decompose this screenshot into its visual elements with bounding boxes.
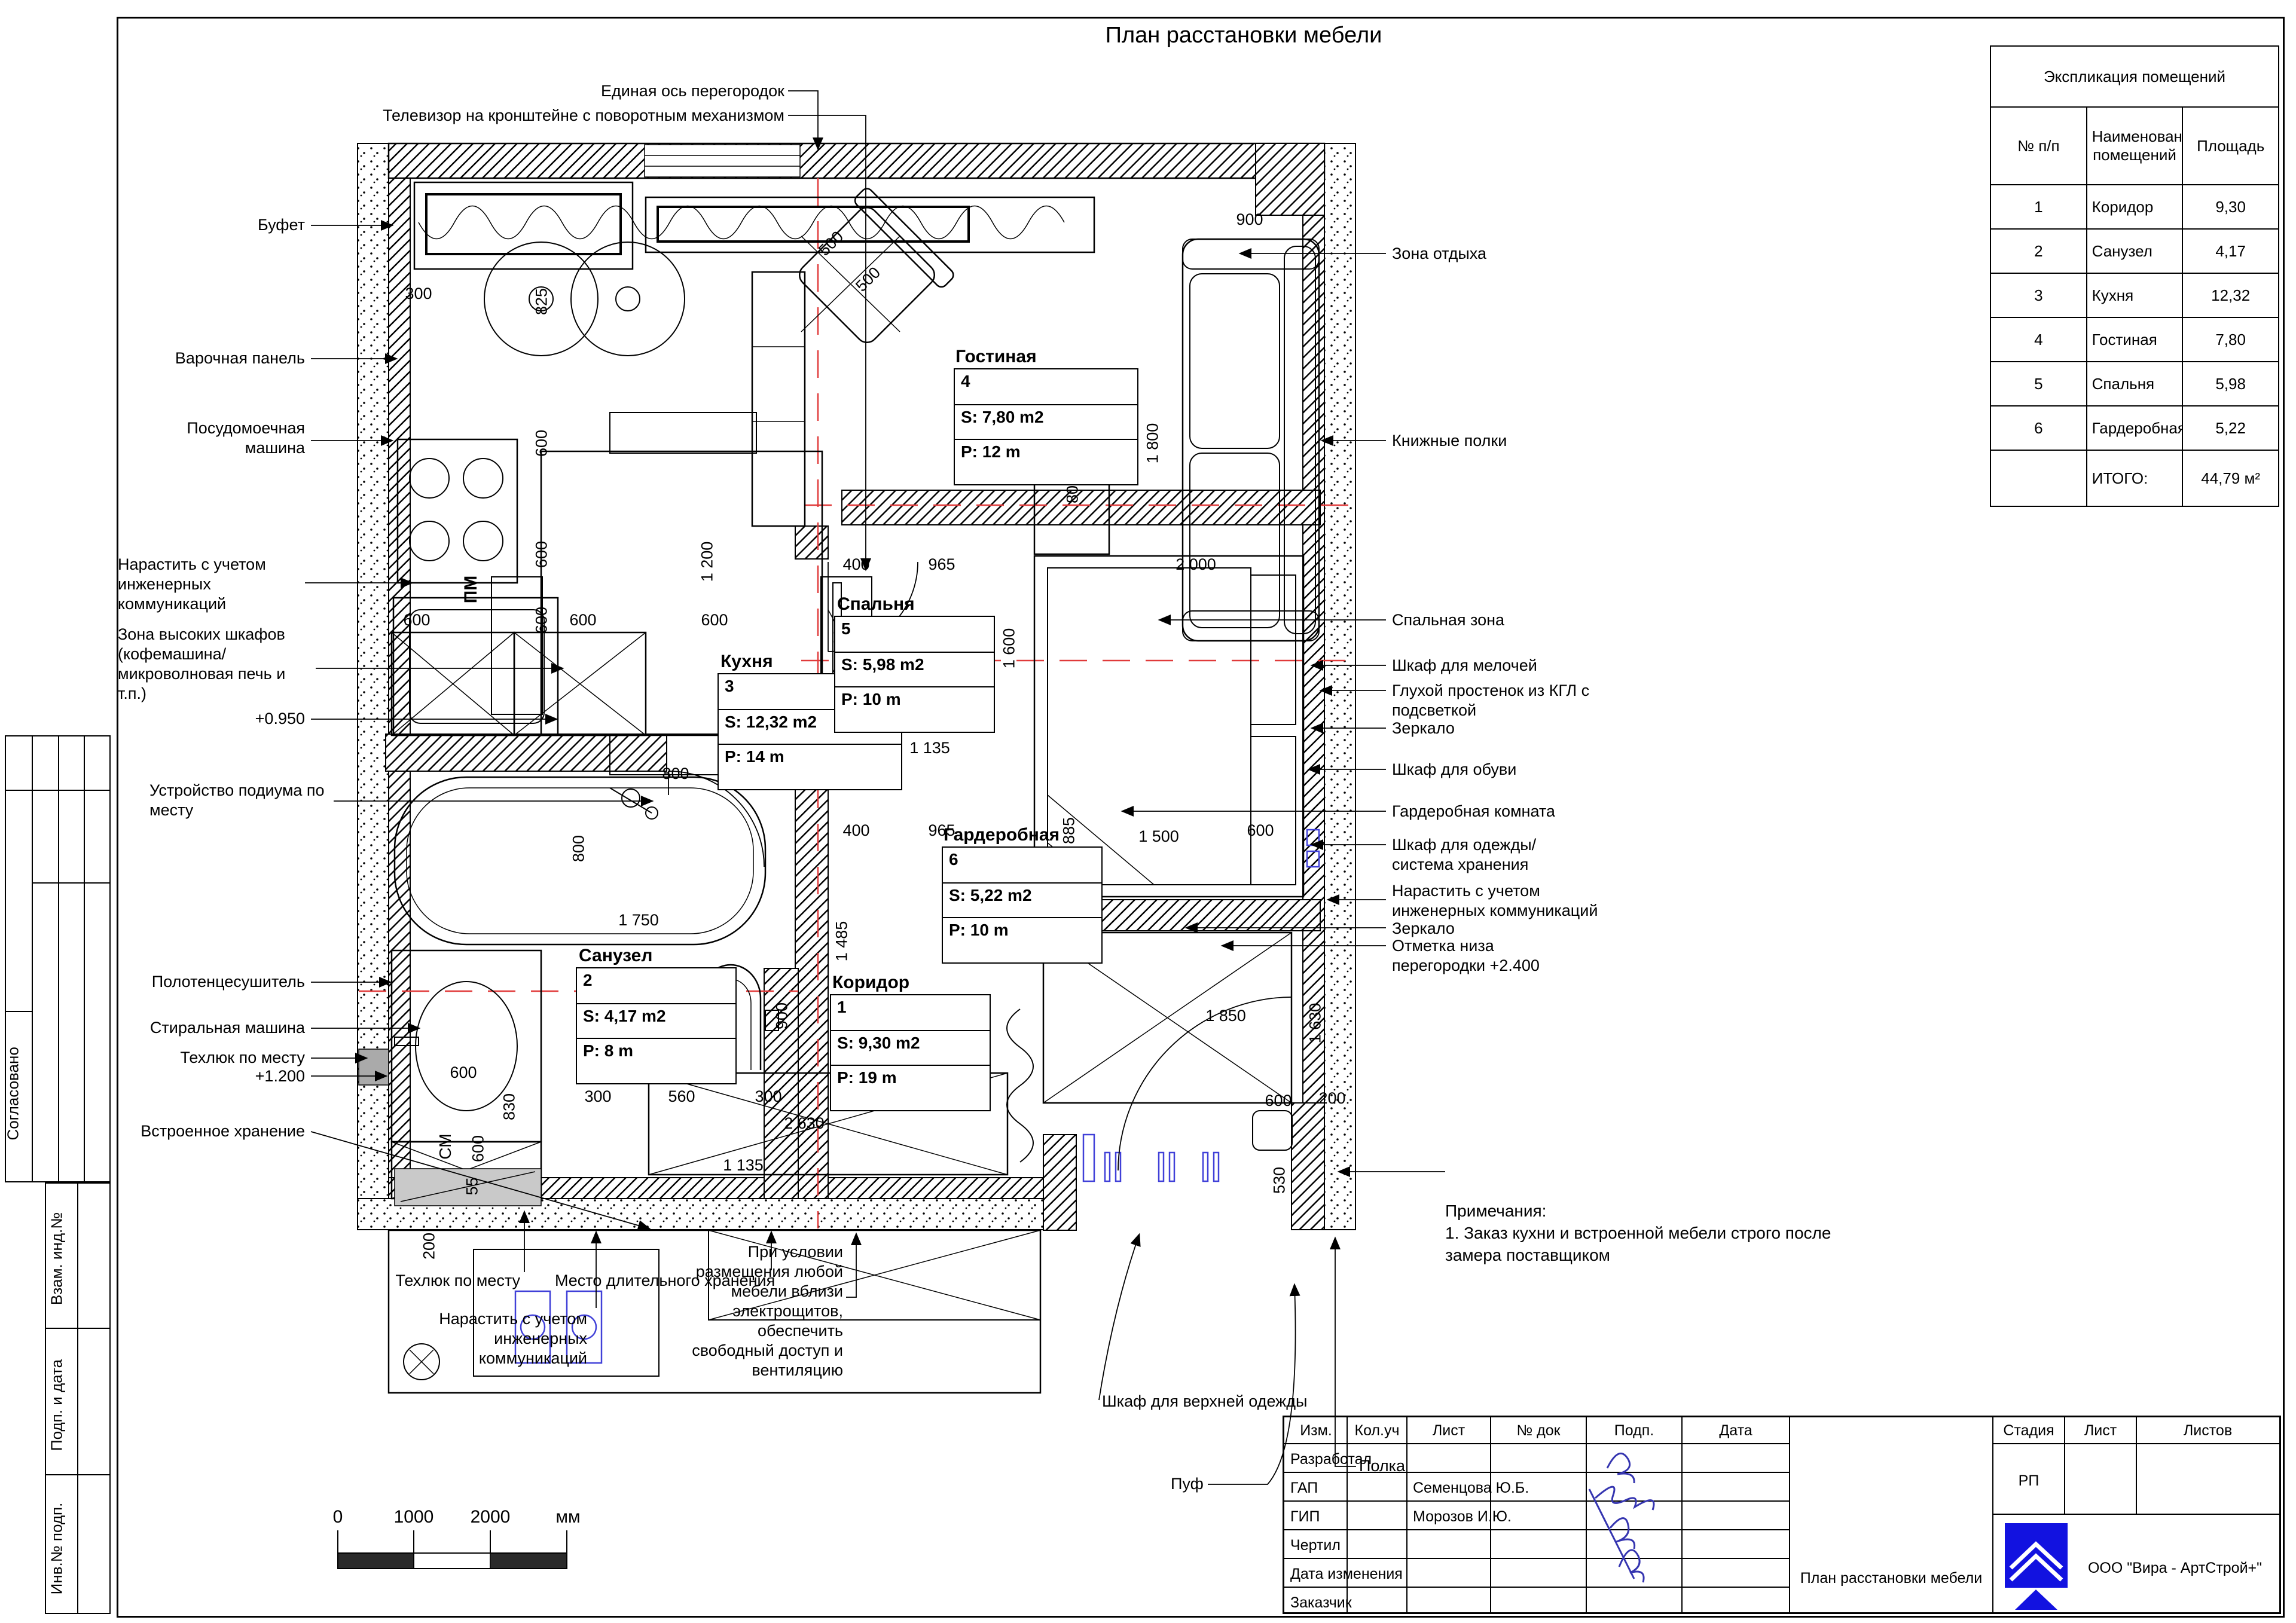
total-value: 44,79 м²	[2182, 450, 2279, 506]
table-row: 3 Кухня 12,32	[1990, 273, 2279, 317]
callout-shoe-cabinet: Шкаф для обуви	[1392, 760, 1571, 780]
stamp-inv: Инв.№ подп.	[48, 1501, 66, 1597]
room-stamp-bedroom: 5 S: 5,98 m2 P: 10 m	[834, 616, 995, 733]
callout-level-1200: +1.200	[215, 1066, 305, 1086]
cell-area: 7,80	[2182, 317, 2279, 362]
notes-title: Примечания:	[1445, 1200, 1900, 1222]
title-block: Изм. Кол.уч Лист № док Подп. Дата Разраб…	[1283, 1416, 2281, 1614]
dim: 1 135	[710, 1156, 776, 1175]
room-stamp-livingroom: 4 S: 7,80 m2 P: 12 m	[954, 368, 1138, 485]
callout-builtin-storage: Встроенное хранение	[126, 1121, 305, 1141]
dim: 1 200	[698, 529, 717, 595]
room-perimeter: P: 8 m	[577, 1038, 735, 1072]
room-name-bedroom: Спальня	[837, 594, 915, 615]
cell-name: Спальня	[2087, 362, 2183, 406]
col-header-name: Наименование помещений	[2087, 107, 2183, 185]
room-area: S: 7,80 m2	[955, 404, 1137, 439]
dim: 800	[643, 765, 709, 783]
cell-num: 4	[1990, 317, 2087, 362]
dim: 300	[565, 1087, 631, 1106]
stamp-podp: Подп. и дата	[48, 1358, 66, 1453]
room-area: S: 9,30 m2	[831, 1030, 990, 1065]
callout-partition-axis: Единая ось перегородок	[468, 81, 784, 101]
dim: 800	[570, 816, 588, 882]
tb-role-change-date: Дата изменения	[1290, 1566, 1403, 1583]
col-header-area: Площадь	[2182, 107, 2279, 185]
callout-washing-machine: Стиральная машина	[126, 1018, 305, 1038]
callout-pouf: Пуф	[1171, 1474, 1242, 1494]
tb-col-list: Лист	[1407, 1422, 1491, 1439]
tb-sheets-label: Листов	[2136, 1422, 2279, 1439]
cell-area: 5,98	[2182, 362, 2279, 406]
scale-0: 0	[320, 1506, 356, 1529]
dim: 1 630	[1306, 991, 1325, 1056]
company-logo	[2005, 1523, 2068, 1610]
room-num: 5	[835, 617, 994, 652]
room-perimeter: P: 10 m	[943, 917, 1101, 952]
callout-extend-utilities-right: Нарастить с учетом инженерных коммуникац…	[1392, 881, 1625, 921]
callout-buffet: Буфет	[155, 215, 305, 235]
table-total-row: ИТОГО: 44,79 м²	[1990, 450, 2279, 506]
tb-sheet-label: Лист	[2065, 1422, 2136, 1439]
callout-podium: Устройство подиума по месту	[149, 781, 329, 820]
dim: 1 135	[897, 739, 963, 757]
tb-col-izm: Изм.	[1289, 1422, 1343, 1439]
tb-role-drew: Чертил	[1290, 1537, 1341, 1554]
tb-doc-title: План расстановки мебели	[1790, 1570, 1993, 1587]
callout-level-0950: +0.950	[215, 709, 305, 729]
tb-role-gip: ГИП	[1290, 1508, 1320, 1526]
callout-blind-partition: Глухой простенок из КГЛ с подсветкой	[1392, 681, 1625, 720]
cell-area: 9,30	[2182, 185, 2279, 229]
callout-tall-cabinets: Зона высоких шкафов (кофемашина/ микрово…	[118, 625, 303, 704]
tb-stage-value: РП	[1993, 1472, 2065, 1490]
room-stamp-bathroom: 2 S: 4,17 m2 P: 8 m	[576, 967, 737, 1084]
tb-role-customer: Заказчик	[1290, 1594, 1352, 1612]
tb-col-podp: Подп.	[1586, 1422, 1682, 1439]
dim: 200	[1299, 1089, 1365, 1108]
callout-clothes-storage: Шкаф для одежды/ система хранения	[1392, 835, 1583, 875]
explication-table: Экспликация помещений № п/п Наименование…	[1990, 45, 2279, 507]
room-area: S: 4,17 m2	[577, 1003, 735, 1038]
cell-name: Санузел	[2087, 229, 2183, 273]
dim: 2 000	[1163, 555, 1229, 574]
dim: 300	[735, 1087, 801, 1106]
callout-hob: Варочная панель	[126, 349, 305, 368]
dim: 530	[1271, 1148, 1289, 1214]
tb-role-gap: ГАП	[1290, 1480, 1318, 1497]
table-row: 5 Спальня 5,98	[1990, 362, 2279, 406]
dim: 600	[533, 588, 551, 653]
floor-plan	[0, 0, 2296, 1623]
tb-col-koluch: Кол.уч	[1347, 1422, 1407, 1439]
washing-machine-mark: СМ	[436, 1114, 455, 1179]
room-name-bathroom: Санузел	[579, 946, 652, 966]
dim: 600	[1228, 821, 1293, 840]
cell-area: 5,22	[2182, 406, 2279, 450]
stamp-vzam: Взам. инд.№	[48, 1211, 66, 1307]
dim: 825	[533, 269, 551, 335]
total-label: ИТОГО:	[2087, 450, 2183, 506]
scale-1000: 1000	[378, 1506, 450, 1529]
tb-name-gap: Семенцова Ю.Б.	[1413, 1480, 1529, 1497]
cell-num: 2	[1990, 229, 2087, 273]
dim: 900	[1217, 210, 1283, 229]
room-stamp-wardrobe: 6 S: 5,22 m2 P: 10 m	[942, 846, 1103, 964]
callout-mirror-2: Зеркало	[1392, 919, 1512, 939]
dim: 400	[823, 821, 889, 840]
callout-rest-zone: Зона отдыха	[1392, 244, 1607, 264]
cell-name: Гардеробная	[2087, 406, 2183, 450]
room-name-livingroom: Гостиная	[955, 347, 1037, 367]
dim: 600	[550, 611, 616, 629]
dim: 1 600	[1000, 616, 1019, 681]
tb-company: ООО "Вира - АртСтрой+"	[2071, 1560, 2279, 1577]
table-row: 1 Коридор 9,30	[1990, 185, 2279, 229]
tb-role-developed: Разработал	[1290, 1451, 1372, 1468]
room-area: S: 5,98 m2	[835, 652, 994, 686]
room-num: 4	[955, 369, 1137, 404]
left-stamp-top: Согласовано	[5, 735, 111, 1182]
dim: 830	[500, 1074, 519, 1140]
notes-block: Примечания: 1. Заказ кухни и встроенной …	[1445, 1200, 1900, 1267]
drawing-sheet: План расстановки мебели	[0, 0, 2296, 1623]
dim: 600	[430, 1063, 496, 1082]
dim: 1 500	[1126, 827, 1192, 846]
callout-extend-utilities-left: Нарастить с учетом инженерных коммуникац…	[118, 555, 291, 614]
tb-col-data: Дата	[1682, 1422, 1790, 1439]
callout-tv-bracket: Телевизор на кронштейне с поворотным мех…	[306, 106, 784, 126]
table-row: 6 Гардеробная 5,22	[1990, 406, 2279, 450]
notes-line2: замера поставщиком	[1445, 1245, 1900, 1267]
dim: 600	[533, 411, 551, 476]
callout-mirror-1: Зеркало	[1392, 719, 1512, 738]
callout-book-shelves: Книжные полки	[1392, 431, 1607, 451]
stamp-agreed: Согласовано	[4, 1057, 23, 1141]
dim: 1 485	[833, 909, 851, 974]
cell-num: 1	[1990, 185, 2087, 229]
callout-sleeping-zone: Спальная зона	[1392, 610, 1607, 630]
callout-dishwasher: Посудомоечная машина	[138, 418, 305, 458]
room-num: 2	[577, 968, 735, 1003]
dim: 2 630	[771, 1114, 837, 1133]
callout-hatch-bottom: Техлюк по месту	[347, 1271, 520, 1291]
tb-name-gip: Морозов И.Ю.	[1413, 1508, 1512, 1526]
room-num: 1	[831, 995, 990, 1030]
tb-stage-label: Стадия	[1993, 1422, 2065, 1439]
col-header-num: № п/п	[1990, 107, 2087, 185]
cell-num: 6	[1990, 406, 2087, 450]
cell-area: 4,17	[2182, 229, 2279, 273]
dim: 900	[773, 983, 792, 1049]
cell-name: Гостиная	[2087, 317, 2183, 362]
cell-area: 12,32	[2182, 273, 2279, 317]
dim: 965	[909, 555, 975, 574]
dim: 600	[384, 611, 450, 629]
callout-extend-utilities-bottom: Нарастить с учетом инженерных коммуникац…	[402, 1309, 587, 1368]
dim: 55	[463, 1154, 482, 1219]
cell-num: 5	[1990, 362, 2087, 406]
dim: 400	[823, 555, 889, 574]
cell-name: Кухня	[2087, 273, 2183, 317]
scale-unit: мм	[538, 1506, 598, 1529]
callout-small-items-cabinet: Шкаф для мелочей	[1392, 656, 1631, 676]
callout-near-switchboards: При условии размещения любой мебели вбли…	[674, 1242, 843, 1380]
explication-title: Экспликация помещений	[1990, 46, 2279, 107]
room-name-wardrobe: Гардеробная	[944, 825, 1060, 845]
dim: 600	[682, 611, 747, 629]
dim: 560	[649, 1087, 715, 1106]
notes-line1: 1. Заказ кухни и встроенной мебели строг…	[1445, 1222, 1900, 1245]
scale-2000: 2000	[454, 1506, 526, 1529]
callout-outerwear-cabinet: Шкаф для верхней одежды	[1102, 1392, 1413, 1411]
room-name-kitchen: Кухня	[720, 652, 773, 672]
left-stamp-bottom: Взам. инд.№ Подп. и дата Инв.№ подп.	[45, 1182, 111, 1614]
dishwasher-mark: ПМ	[461, 557, 481, 622]
cell-empty	[1990, 450, 2087, 506]
callout-partition-bottom-mark: Отметка низа перегородки +2.400	[1392, 936, 1577, 976]
dim: 600	[533, 522, 551, 588]
dim: 1 750	[606, 911, 671, 930]
room-perimeter: P: 10 m	[835, 686, 994, 721]
room-perimeter: P: 19 m	[831, 1065, 990, 1099]
dim: 1 850	[1193, 1007, 1259, 1025]
room-perimeter: P: 12 m	[955, 439, 1137, 473]
dim: 300	[386, 285, 451, 303]
dim: 200	[420, 1214, 439, 1279]
cell-name: Коридор	[2087, 185, 2183, 229]
callout-hatch-left: Техлюк по месту	[155, 1048, 305, 1068]
callout-wardrobe-room: Гардеробная комната	[1392, 802, 1607, 821]
room-area: S: 5,22 m2	[943, 882, 1101, 917]
room-perimeter: P: 14 m	[719, 744, 901, 778]
table-row: 2 Санузел 4,17	[1990, 229, 2279, 273]
dim: 1 800	[1144, 411, 1162, 476]
callout-towel-dryer: Полотенцесушитель	[126, 972, 305, 992]
tb-col-ndok: № док	[1491, 1422, 1586, 1439]
room-name-corridor: Коридор	[832, 973, 909, 993]
room-num: 6	[943, 848, 1101, 882]
table-row: 4 Гостиная 7,80	[1990, 317, 2279, 362]
room-stamp-corridor: 1 S: 9,30 m2 P: 19 m	[830, 994, 991, 1111]
scale-bar	[338, 1530, 567, 1569]
cell-num: 3	[1990, 273, 2087, 317]
